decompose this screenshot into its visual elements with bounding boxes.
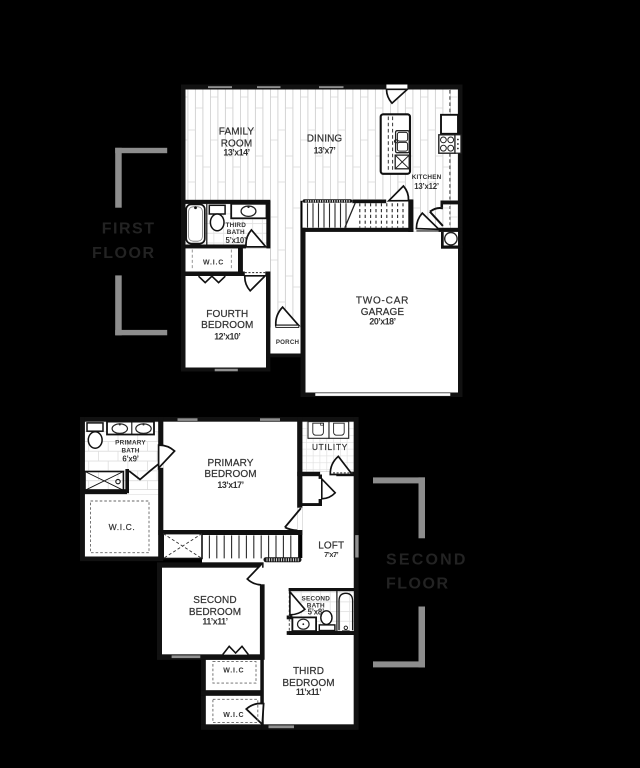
- svg-text:SECOND: SECOND: [302, 595, 331, 602]
- svg-text:KITCHEN: KITCHEN: [412, 174, 442, 181]
- svg-text:BEDROOM: BEDROOM: [201, 320, 253, 331]
- svg-text:DINING: DINING: [307, 134, 343, 145]
- svg-text:THIRD: THIRD: [226, 222, 247, 229]
- svg-text:20’x18’: 20’x18’: [369, 317, 395, 327]
- svg-text:FLOOR: FLOOR: [92, 245, 156, 262]
- svg-text:11’x11’: 11’x11’: [296, 687, 321, 697]
- svg-text:FAMILY: FAMILY: [219, 127, 255, 138]
- svg-text:13’x12’: 13’x12’: [414, 182, 439, 191]
- svg-text:FOURTH: FOURTH: [206, 309, 248, 320]
- svg-text:5’x8’: 5’x8’: [308, 608, 324, 617]
- svg-text:PRIMARY: PRIMARY: [207, 458, 253, 469]
- svg-text:W.I.C: W.I.C: [203, 260, 224, 267]
- svg-text:TWO-CAR: TWO-CAR: [356, 296, 409, 307]
- svg-text:BATH: BATH: [121, 448, 139, 455]
- svg-text:6’x9’: 6’x9’: [122, 455, 138, 464]
- svg-text:SECOND: SECOND: [193, 595, 236, 606]
- svg-text:13’x7’: 13’x7’: [314, 145, 336, 155]
- svg-text:W.I.C: W.I.C: [223, 667, 244, 674]
- svg-text:13’x17’: 13’x17’: [217, 480, 243, 490]
- svg-text:THIRD: THIRD: [293, 666, 324, 677]
- svg-text:FLOOR: FLOOR: [386, 575, 450, 592]
- svg-text:PRIMARY: PRIMARY: [115, 439, 146, 446]
- svg-text:12’x10’: 12’x10’: [214, 332, 240, 342]
- svg-text:UTILITY: UTILITY: [312, 443, 348, 452]
- svg-text:SECOND: SECOND: [386, 552, 468, 569]
- svg-text:W.I.C: W.I.C: [223, 712, 244, 719]
- svg-text:11’x11’: 11’x11’: [202, 616, 227, 626]
- svg-text:FIRST: FIRST: [102, 221, 156, 238]
- svg-text:13’x14’: 13’x14’: [223, 147, 249, 157]
- svg-text:7’x7’: 7’x7’: [324, 550, 339, 559]
- svg-text:PORCH: PORCH: [276, 339, 300, 346]
- svg-text:5’x10’: 5’x10’: [226, 236, 247, 245]
- svg-text:BEDROOM: BEDROOM: [204, 469, 256, 480]
- svg-text:W.I.C.: W.I.C.: [109, 522, 136, 532]
